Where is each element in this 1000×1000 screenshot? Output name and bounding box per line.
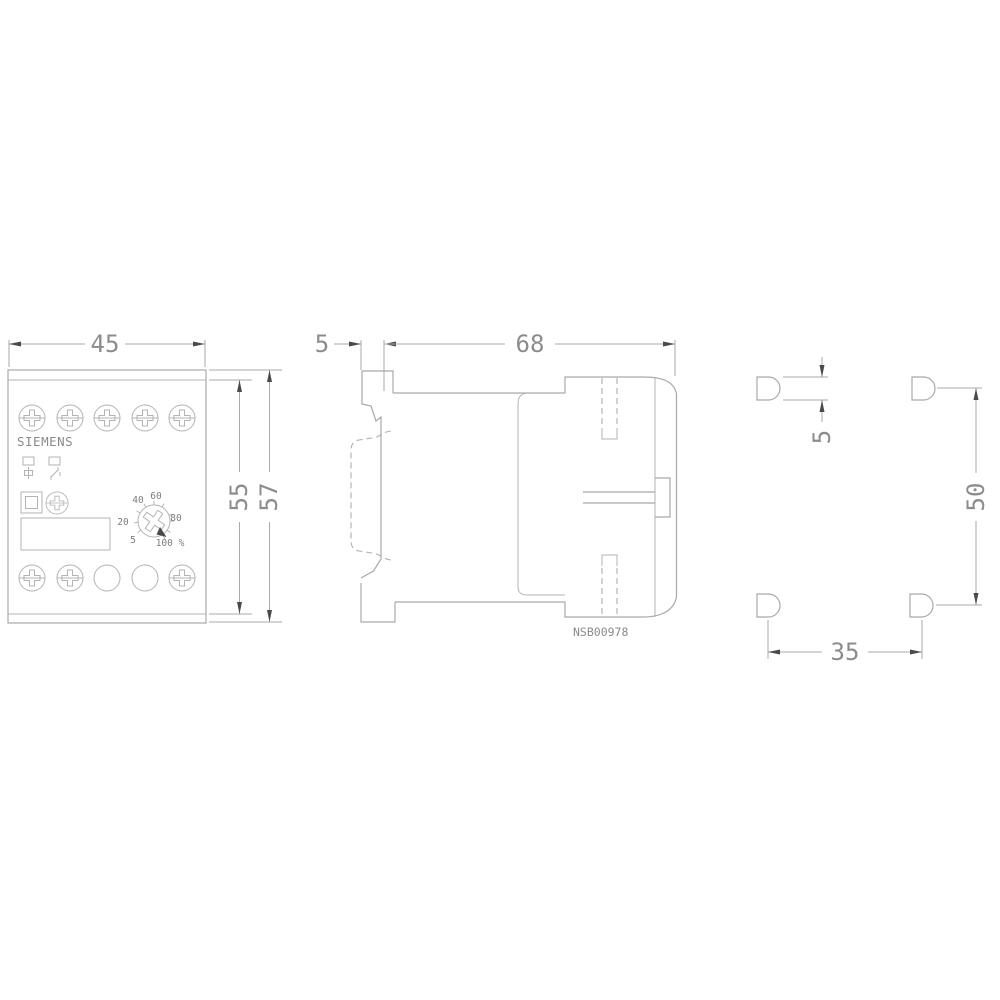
screw-icon — [132, 405, 158, 431]
arrow-up-icon — [267, 370, 272, 382]
mounting-hole — [757, 594, 780, 617]
dimension-width-45: 45 — [9, 330, 205, 367]
dim-label-68: 68 — [516, 330, 545, 358]
screw-channel-ends — [602, 428, 617, 566]
din-rail-profile-dashed — [351, 431, 391, 560]
dial-cross-slot — [139, 506, 170, 537]
fuse-symbol-icon — [25, 467, 33, 479]
dimension-rail-5-and-depth-68: 5 68 — [315, 330, 675, 391]
screw-icon — [169, 565, 195, 591]
dial-knob — [138, 505, 170, 537]
side-view: 5 68 NSB00978 — [315, 330, 677, 639]
mounting-hole — [912, 377, 935, 400]
dim-label-57: 57 — [255, 483, 283, 512]
arrow-left-icon — [768, 650, 780, 655]
dim-label-50: 50 — [962, 483, 990, 512]
dial-ticks — [134, 501, 174, 540]
screw-icon — [169, 405, 195, 431]
din-clip-bottom-block — [361, 583, 395, 622]
dim-label-55: 55 — [225, 483, 253, 512]
terminal-screws-bottom — [19, 565, 195, 591]
side-body-outline — [393, 377, 677, 617]
arrow-up-icon — [820, 400, 825, 412]
dimension-heights-55-57: 55 57 — [209, 370, 283, 622]
din-clip-top-block — [361, 371, 393, 578]
screw-icon — [57, 405, 83, 431]
dimension-vertical-spacing-50: 50 — [936, 388, 990, 605]
arrow-down-icon — [820, 365, 825, 377]
arrow-up-icon — [974, 388, 979, 400]
front-view: SIEMENS 5 20 40 — [8, 330, 283, 623]
arrow-up-icon — [237, 380, 242, 392]
dial-scale-60: 60 — [150, 491, 162, 502]
arrow-left-icon — [9, 342, 21, 347]
dimension-hole-height-5: 5 — [783, 357, 836, 444]
terminal-hole — [132, 565, 158, 591]
terminal-screws-top — [19, 405, 195, 431]
dim-label-5: 5 — [808, 430, 836, 444]
mounting-hole-pattern: 5 50 35 — [757, 357, 990, 666]
dim-label-5: 5 — [315, 330, 329, 358]
screw-icon — [19, 405, 45, 431]
side-body-inner-edge — [518, 393, 565, 595]
indicator-window — [23, 457, 34, 465]
arrow-down-icon — [237, 602, 242, 614]
contact-symbol-icon — [51, 467, 60, 480]
latch-slot — [583, 492, 655, 503]
dial-scale-80: 80 — [170, 513, 182, 524]
arrow-right-icon — [349, 342, 361, 347]
arrow-right-icon — [910, 650, 922, 655]
terminal-hole — [94, 565, 120, 591]
dial-scale-5: 5 — [130, 535, 136, 546]
arrow-right-icon — [193, 342, 205, 347]
indicator-windows — [23, 457, 60, 480]
dial-scale-40: 40 — [132, 495, 144, 506]
reference-number: NSB00978 — [573, 625, 628, 639]
arrow-down-icon — [974, 593, 979, 605]
dial-scale-20: 20 — [117, 517, 129, 528]
indicator-window — [49, 457, 60, 465]
dim-label-35: 35 — [831, 638, 860, 666]
test-button-inner — [26, 497, 38, 509]
brand-label: SIEMENS — [17, 434, 73, 449]
technical-drawing: SIEMENS 5 20 40 — [0, 0, 1000, 1000]
dim-label-45: 45 — [91, 330, 120, 358]
dial-scale-100: 100 % — [156, 538, 185, 549]
mounting-hole — [910, 594, 933, 617]
arrow-right-icon — [663, 342, 675, 347]
arrow-down-icon — [267, 610, 272, 622]
mounting-hole — [757, 377, 780, 400]
screw-icon — [57, 565, 83, 591]
screw-icon — [94, 405, 120, 431]
dimension-drawing-page: SIEMENS 5 20 40 — [0, 0, 1000, 1000]
label-field — [21, 518, 110, 550]
latch-tab — [655, 478, 670, 517]
dimension-horizontal-spacing-35: 35 — [768, 620, 922, 666]
adjustment-dial: 5 20 40 60 80 100 % — [117, 491, 184, 549]
test-button — [21, 492, 42, 513]
screw-icon — [46, 492, 68, 514]
screw-icon — [19, 565, 45, 591]
screw-channels-dashed — [602, 378, 617, 616]
